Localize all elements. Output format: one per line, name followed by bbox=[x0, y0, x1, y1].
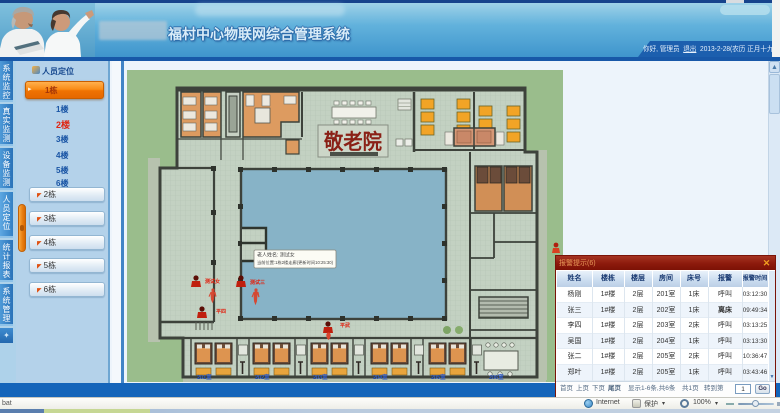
svg-text:203室: 203室 bbox=[313, 373, 328, 381]
svg-text:205室: 205室 bbox=[431, 373, 446, 381]
svg-text:敬老院: 敬老院 bbox=[323, 130, 382, 154]
svg-text:测试三: 测试三 bbox=[250, 279, 265, 286]
svg-text:201室: 201室 bbox=[197, 373, 212, 381]
svg-text:204室: 204室 bbox=[373, 373, 388, 381]
svg-text:202室: 202室 bbox=[255, 373, 270, 381]
svg-text:当前位置:1栋2楼走廊(更新时间10:25:30): 当前位置:1栋2楼走廊(更新时间10:25:30) bbox=[257, 259, 334, 266]
svg-text:平武: 平武 bbox=[340, 322, 350, 329]
svg-text:206室: 206室 bbox=[489, 373, 504, 381]
svg-text:测试女: 测试女 bbox=[205, 278, 220, 285]
svg-text:平四: 平四 bbox=[216, 308, 226, 315]
svg-text:老人姓名: 测试女: 老人姓名: 测试女 bbox=[257, 252, 295, 259]
